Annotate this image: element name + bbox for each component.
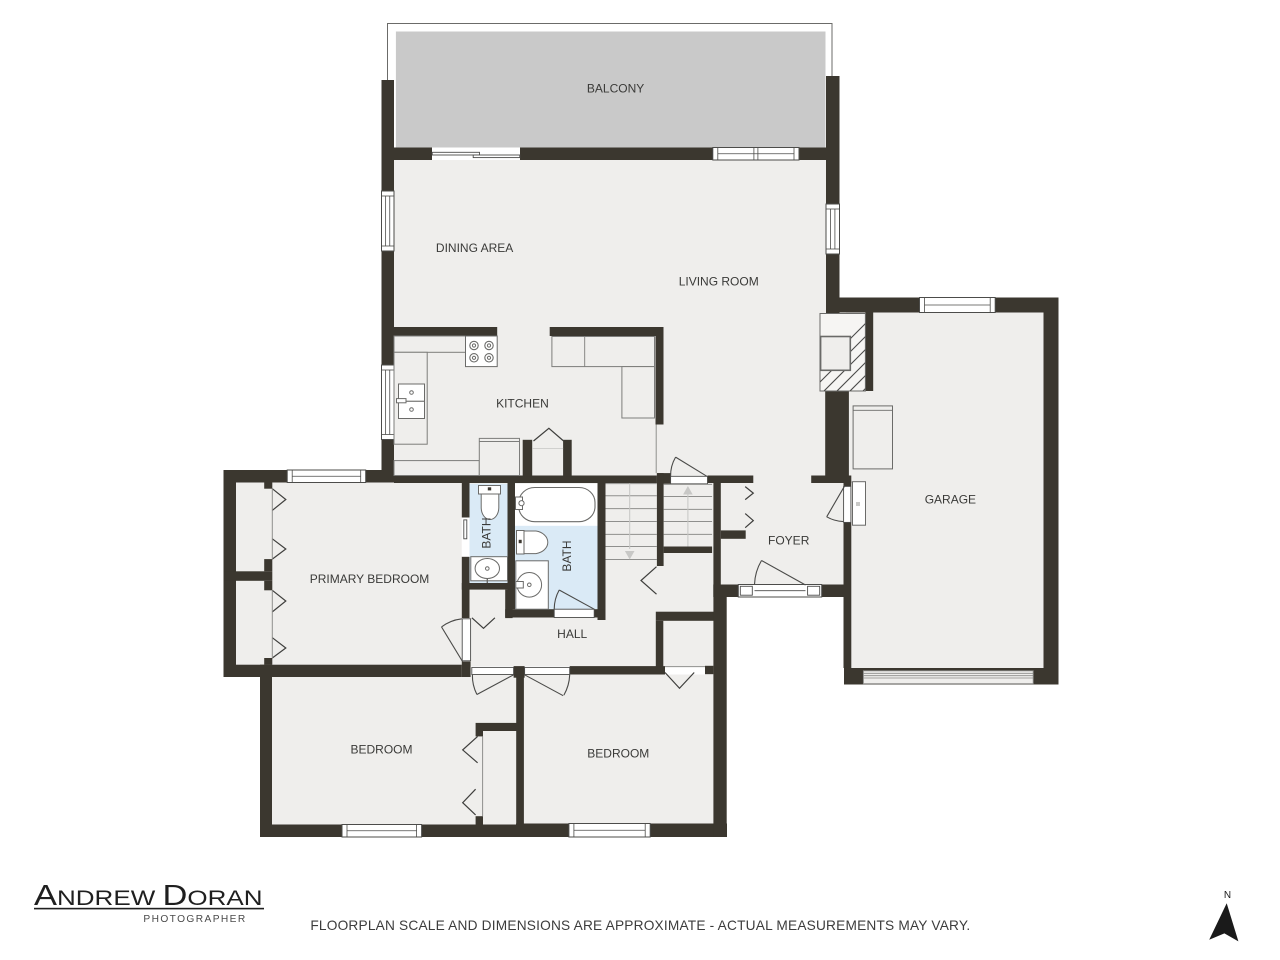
svg-text:PRIMARY BEDROOM: PRIMARY BEDROOM [310, 572, 430, 586]
svg-text:FOYER: FOYER [768, 534, 810, 548]
svg-text:FLOORPLAN SCALE AND DIMENSIONS: FLOORPLAN SCALE AND DIMENSIONS ARE APPRO… [310, 918, 970, 933]
svg-text:HALL: HALL [557, 627, 587, 641]
svg-text:DINING AREA: DINING AREA [436, 241, 513, 255]
svg-text:BATH: BATH [480, 517, 494, 548]
svg-text:LIVING ROOM: LIVING ROOM [679, 274, 759, 288]
svg-text:KITCHEN: KITCHEN [496, 397, 549, 411]
svg-text:BATH: BATH [560, 540, 574, 571]
svg-text:BALCONY: BALCONY [587, 82, 644, 96]
svg-text:GARAGE: GARAGE [925, 493, 976, 507]
svg-text:BEDROOM: BEDROOM [587, 747, 649, 761]
svg-text:N: N [1224, 890, 1231, 901]
svg-text:PHOTOGRAPHER: PHOTOGRAPHER [143, 914, 246, 925]
svg-text:BEDROOM: BEDROOM [350, 742, 412, 756]
